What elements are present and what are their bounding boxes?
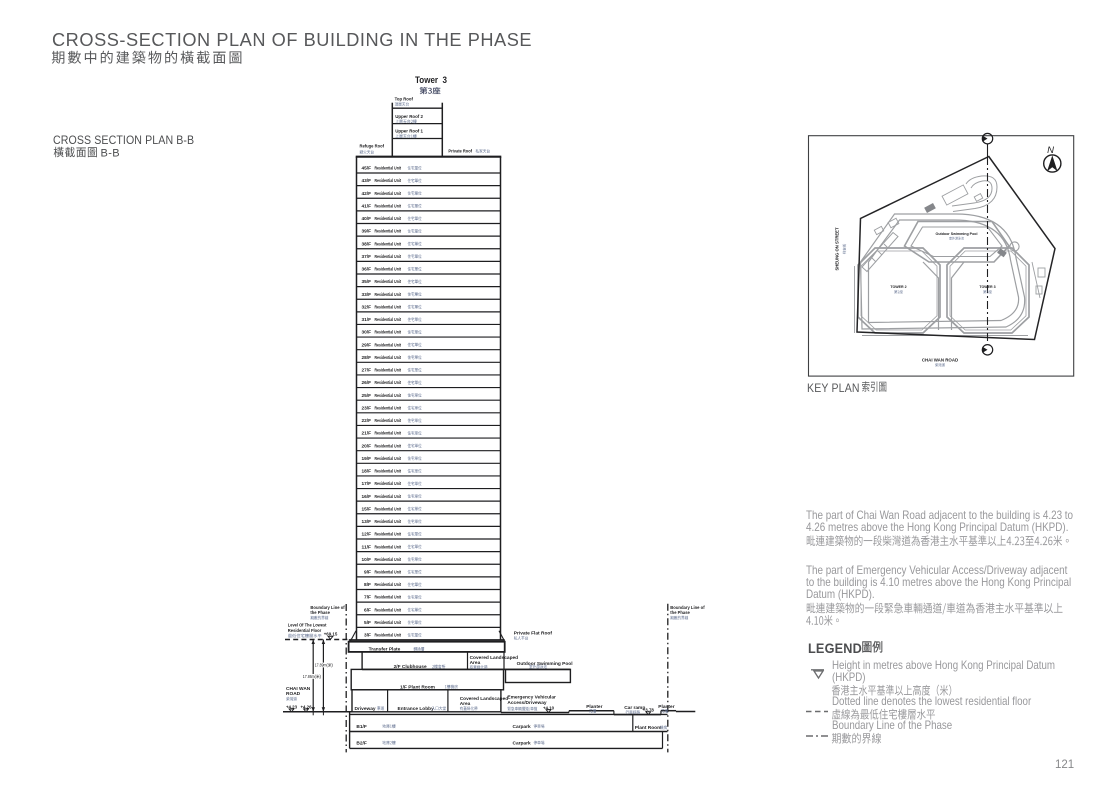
- svg-text:B-B: B-B: [101, 147, 121, 159]
